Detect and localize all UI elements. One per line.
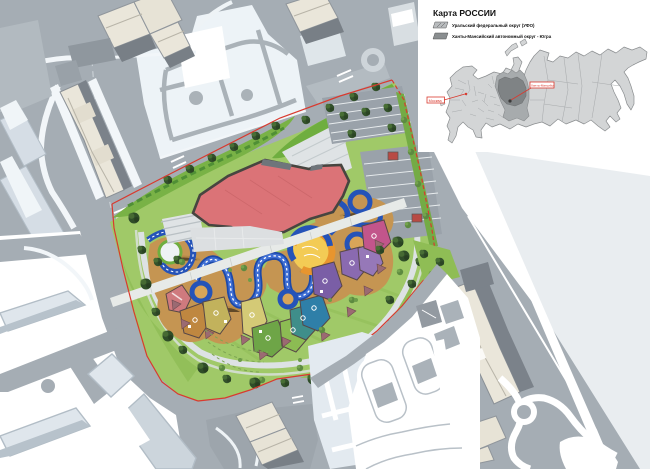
svg-text:Ханты-Мансийск: Ханты-Мансийск [531, 83, 555, 87]
svg-text:Ханты-Мансийский автономный ок: Ханты-Мансийский автономный округ - Югра [452, 34, 552, 39]
svg-text:Уральский федеральный округ (У: Уральский федеральный округ (УФО) [452, 23, 535, 28]
svg-text:Москва: Москва [429, 99, 443, 103]
svg-text:Карта РОССИИ: Карта РОССИИ [433, 8, 496, 18]
